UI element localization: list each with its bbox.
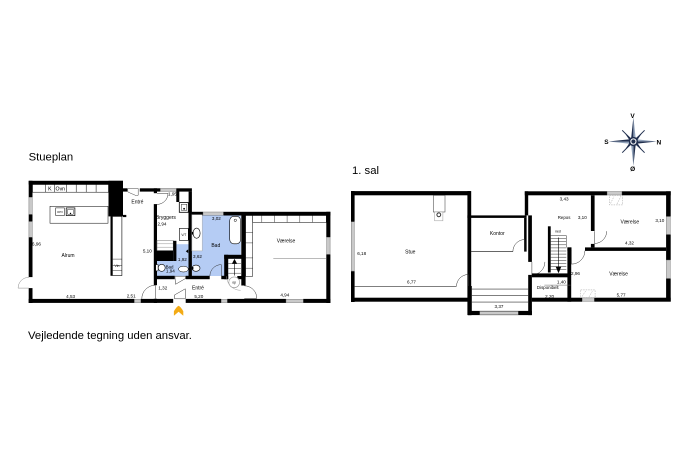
svg-text:Stue: Stue	[405, 249, 416, 255]
svg-text:2,96: 2,96	[571, 271, 580, 276]
svg-text:Entré: Entré	[131, 199, 143, 205]
svg-text:3,37: 3,37	[495, 304, 504, 309]
svg-text:2,51: 2,51	[127, 293, 136, 298]
svg-text:Repos: Repos	[558, 215, 571, 220]
svg-text:3,62: 3,62	[193, 254, 202, 259]
svg-text:Vejledende tegning uden ansvar: Vejledende tegning uden ansvar.	[28, 330, 192, 342]
svg-text:OPV: OPV	[57, 210, 63, 214]
svg-text:2,20: 2,20	[545, 294, 554, 299]
svg-text:Værelse: Værelse	[277, 239, 296, 245]
svg-text:1. sal: 1. sal	[352, 165, 379, 177]
svg-text:3,10: 3,10	[655, 218, 664, 223]
svg-text:1,95: 1,95	[168, 192, 177, 197]
svg-text:1,92: 1,92	[178, 257, 187, 262]
svg-text:K: K	[48, 187, 52, 193]
svg-text:Vin: Vin	[115, 264, 120, 268]
svg-text:Ovn: Ovn	[56, 187, 66, 193]
svg-text:Entré: Entré	[192, 285, 204, 291]
svg-text:Kontor: Kontor	[490, 231, 505, 237]
svg-text:1,40: 1,40	[557, 280, 566, 285]
svg-text:Disponibelt: Disponibelt	[537, 285, 560, 290]
svg-text:Ø: Ø	[630, 166, 635, 173]
svg-text:5,20: 5,20	[194, 294, 203, 299]
svg-text:1,94: 1,94	[166, 269, 175, 274]
svg-text:N: N	[657, 139, 662, 146]
svg-text:ned: ned	[555, 230, 561, 234]
svg-text:2,94: 2,94	[158, 221, 167, 226]
svg-text:S: S	[604, 139, 609, 146]
svg-text:Bryggers: Bryggers	[156, 215, 177, 221]
svg-text:6,18: 6,18	[357, 251, 366, 256]
svg-text:3,02: 3,02	[212, 216, 221, 221]
svg-text:op: op	[232, 281, 236, 285]
svg-text:4,32: 4,32	[625, 241, 634, 246]
svg-text:5,77: 5,77	[617, 293, 626, 298]
svg-text:V: V	[630, 113, 635, 120]
svg-text:V/T: V/T	[181, 233, 186, 237]
svg-text:4,53: 4,53	[66, 294, 75, 299]
svg-text:Værelse: Værelse	[609, 271, 628, 277]
svg-text:3,43: 3,43	[560, 197, 569, 202]
svg-text:4,94: 4,94	[280, 293, 289, 298]
svg-text:Stueplan: Stueplan	[29, 152, 74, 164]
svg-text:5,10: 5,10	[143, 249, 152, 254]
svg-text:Værelse: Værelse	[620, 220, 639, 226]
svg-text:Bad: Bad	[211, 243, 220, 249]
svg-text:3,10: 3,10	[578, 215, 587, 220]
svg-text:1,32: 1,32	[158, 285, 167, 290]
svg-text:6,96: 6,96	[32, 242, 41, 247]
svg-text:Alrum: Alrum	[61, 253, 74, 259]
svg-text:6,77: 6,77	[407, 279, 416, 284]
